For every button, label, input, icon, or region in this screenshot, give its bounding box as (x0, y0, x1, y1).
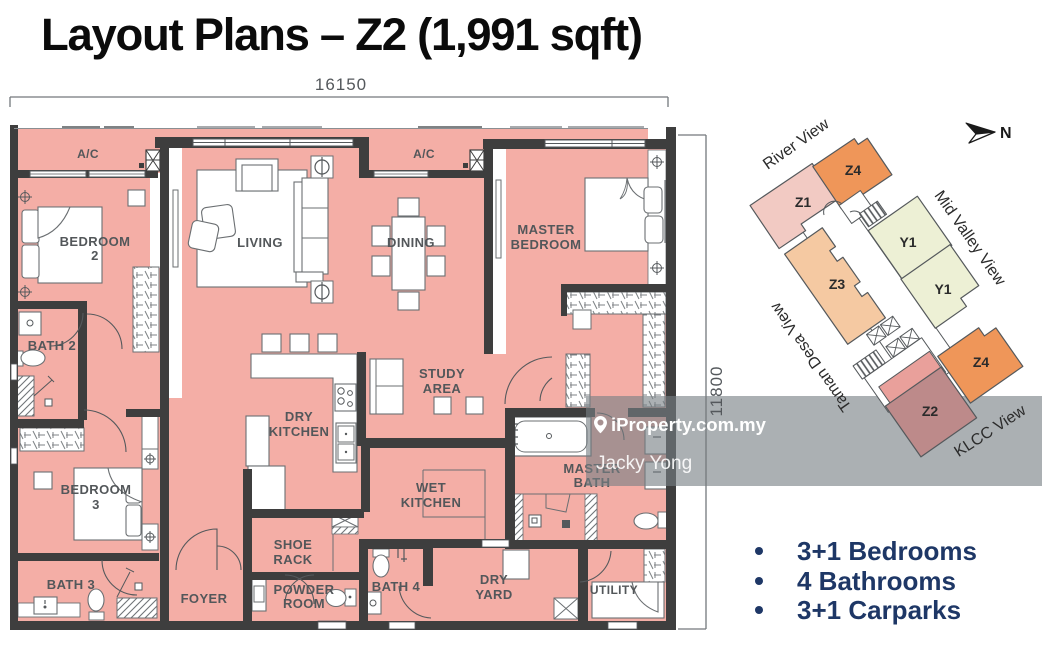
svg-text:Z2: Z2 (922, 403, 939, 419)
svg-text:DINING: DINING (387, 235, 435, 250)
svg-text:BATH 2: BATH 2 (28, 338, 76, 353)
svg-text:Z3: Z3 (829, 276, 846, 292)
svg-text:BEDROOM: BEDROOM (61, 482, 132, 497)
svg-text:3: 3 (92, 497, 100, 512)
svg-text:Y1: Y1 (899, 234, 916, 250)
svg-text:Y1: Y1 (934, 281, 951, 297)
svg-text:STUDY: STUDY (419, 366, 465, 381)
svg-text:YARD: YARD (475, 587, 512, 602)
svg-text:MASTER: MASTER (517, 222, 575, 237)
svg-text:DRY: DRY (480, 572, 508, 587)
svg-text:LIVING: LIVING (237, 235, 283, 250)
svg-text:3+1 Bedrooms: 3+1 Bedrooms (797, 536, 977, 566)
svg-text:3+1 Carparks: 3+1 Carparks (797, 595, 961, 625)
svg-text:Z4: Z4 (973, 354, 990, 370)
svg-text:iProperty.com.my: iProperty.com.my (611, 414, 767, 435)
svg-text:BEDROOM: BEDROOM (60, 234, 131, 249)
svg-text:WET: WET (416, 480, 446, 495)
svg-text:Z1: Z1 (795, 194, 812, 210)
svg-text:POWDER: POWDER (274, 582, 335, 597)
svg-text:11800: 11800 (707, 365, 726, 416)
svg-text:BATH 4: BATH 4 (372, 579, 421, 594)
svg-text:BATH 3: BATH 3 (47, 577, 95, 592)
svg-text:UTILITY: UTILITY (590, 583, 638, 597)
svg-text:Z4: Z4 (845, 162, 862, 178)
svg-text:Layout Plans – Z2 (1,991 sqft): Layout Plans – Z2 (1,991 sqft) (41, 9, 642, 60)
svg-text:Jacky Yong: Jacky Yong (596, 453, 692, 474)
svg-text:N: N (1000, 125, 1012, 142)
svg-text:16150: 16150 (315, 75, 367, 94)
svg-text:DRY: DRY (285, 409, 313, 424)
svg-text:A/C: A/C (413, 147, 435, 161)
svg-text:ROOM: ROOM (283, 596, 325, 611)
svg-text:BEDROOM: BEDROOM (511, 237, 582, 252)
svg-text:AREA: AREA (423, 381, 462, 396)
svg-text:4 Bathrooms: 4 Bathrooms (797, 566, 956, 596)
svg-text:FOYER: FOYER (181, 591, 228, 606)
svg-text:A/C: A/C (77, 147, 99, 161)
svg-text:SHOE: SHOE (274, 537, 312, 552)
svg-text:2: 2 (91, 248, 99, 263)
svg-text:KITCHEN: KITCHEN (401, 495, 462, 510)
svg-text:RACK: RACK (273, 552, 312, 567)
svg-text:KITCHEN: KITCHEN (269, 424, 330, 439)
